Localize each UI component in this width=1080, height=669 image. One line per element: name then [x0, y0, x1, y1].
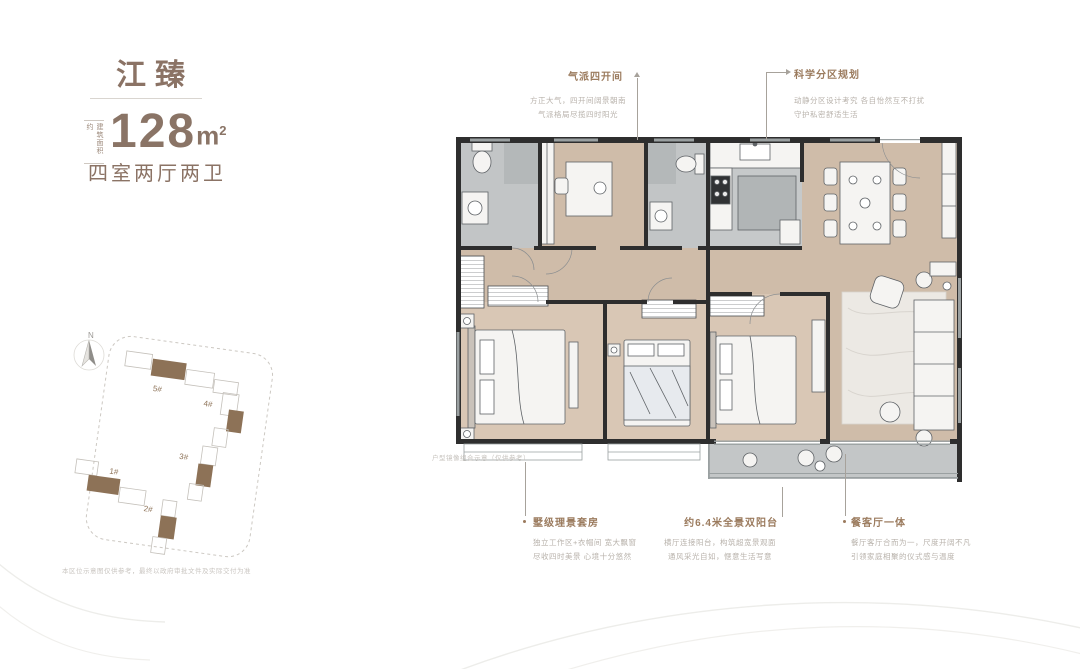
area-unit: m2 — [196, 116, 226, 151]
site-building-2: 2# — [138, 497, 179, 555]
master-bench — [569, 342, 578, 408]
callout-dot-bottom-left — [523, 520, 526, 523]
bedroom2-bed — [624, 340, 690, 426]
balcony-plant — [743, 453, 757, 467]
toilet-1 — [472, 142, 492, 173]
area-value: 128 — [110, 110, 196, 154]
dining-chair — [893, 220, 906, 237]
living-wall-cabinet — [942, 142, 956, 238]
bedroom3-bed — [716, 336, 796, 424]
site-building-4: 4# — [198, 390, 246, 449]
dining-chair — [824, 220, 837, 237]
dining-chair — [893, 194, 906, 211]
layout-type-label: 四室两厅两卫 — [88, 157, 226, 186]
floor-plan — [450, 128, 970, 488]
callout-body-top-right: 动静分区设计考究 各自怡然互不打扰 守护私密舒适生活 — [794, 94, 954, 122]
callout-line-bottom-center — [782, 487, 783, 517]
site-disclaimer: 本区位示意图仅供参考，最终以政府审批文件及实际交付为准 — [62, 565, 282, 575]
round-stool — [880, 402, 900, 422]
callout-body-bottom-right: 餐厅客厅合而为一，尺度开阔不凡 引领家庭相聚的仪式感与温度 — [851, 536, 1001, 564]
site-plan: N 5# 4# 3# — [52, 322, 292, 572]
callout-line-bottom-left — [525, 462, 526, 516]
callout-line-bottom-right — [845, 454, 846, 516]
master-headboard — [468, 326, 475, 428]
dining-chair — [893, 168, 906, 185]
balcony-table — [815, 461, 825, 471]
title-divider — [90, 98, 202, 99]
svg-text:4#: 4# — [203, 399, 214, 409]
side-table — [916, 272, 932, 288]
svg-text:1#: 1# — [109, 467, 120, 477]
callout-arrow-top-right — [786, 69, 791, 75]
svg-text:3#: 3# — [179, 452, 190, 462]
balcony-chair — [798, 450, 814, 466]
bedroom3-headboard — [710, 332, 716, 428]
dining-chair — [824, 168, 837, 185]
study-chair — [555, 178, 568, 194]
page-title: 江臻 — [116, 50, 194, 94]
master-nightstand — [460, 314, 474, 328]
shower-area2 — [648, 140, 676, 184]
callout-title-top-center: 气派四开间 — [568, 68, 623, 83]
bedroom3-dresser — [812, 320, 825, 392]
floorplan-page: 江臻 建筑面积约 128 m2 四室两厅两卫 N 5# — [0, 0, 1080, 669]
callout-body-bottom-center: 横厅连接阳台，构筑超宽景观面 通风采光自如，惬意生活写意 — [660, 536, 780, 564]
study-lamp — [594, 182, 606, 194]
callout-dot-bottom-right — [843, 520, 846, 523]
compass-icon: N — [74, 331, 104, 370]
callout-title-bottom-center: 约6.4米全景双阳台 — [660, 514, 778, 529]
shower-area — [504, 140, 538, 184]
study-cabinet — [541, 142, 554, 244]
master-bed — [475, 330, 565, 424]
callout-body-top-center: 方正大气，四开间阔景朝南 气派格局尽揽四时阳光 — [516, 94, 640, 122]
floor-lamp — [943, 282, 951, 290]
callout-title-top-right: 科学分区规划 — [794, 66, 860, 81]
svg-text:5#: 5# — [152, 384, 163, 394]
dining-chair — [824, 194, 837, 211]
site-building-3: 3# — [174, 443, 218, 503]
fridge — [780, 220, 800, 244]
site-building-1: 1# — [72, 459, 149, 506]
stove — [711, 176, 730, 204]
display-shelf — [930, 262, 956, 276]
sink-2 — [650, 202, 672, 230]
callout-title-bottom-left: 墅级理景套房 — [533, 514, 599, 529]
sink-1 — [462, 192, 488, 224]
callout-title-bottom-right: 餐客厅一体 — [851, 514, 906, 529]
bedroom2-nightstand — [608, 344, 620, 356]
sofa — [914, 300, 954, 430]
area-figure: 建筑面积约 128 m2 — [84, 110, 226, 164]
floorplan-note: 户型镜像组合示意（仅供参考） — [432, 452, 530, 462]
svg-text:N: N — [88, 331, 94, 340]
callout-hline-top-right — [766, 72, 786, 73]
balcony-chair-2 — [826, 446, 842, 462]
svg-text:2#: 2# — [143, 504, 154, 514]
callout-line-top-right — [766, 72, 767, 140]
callout-arrow-top-center — [634, 72, 640, 77]
